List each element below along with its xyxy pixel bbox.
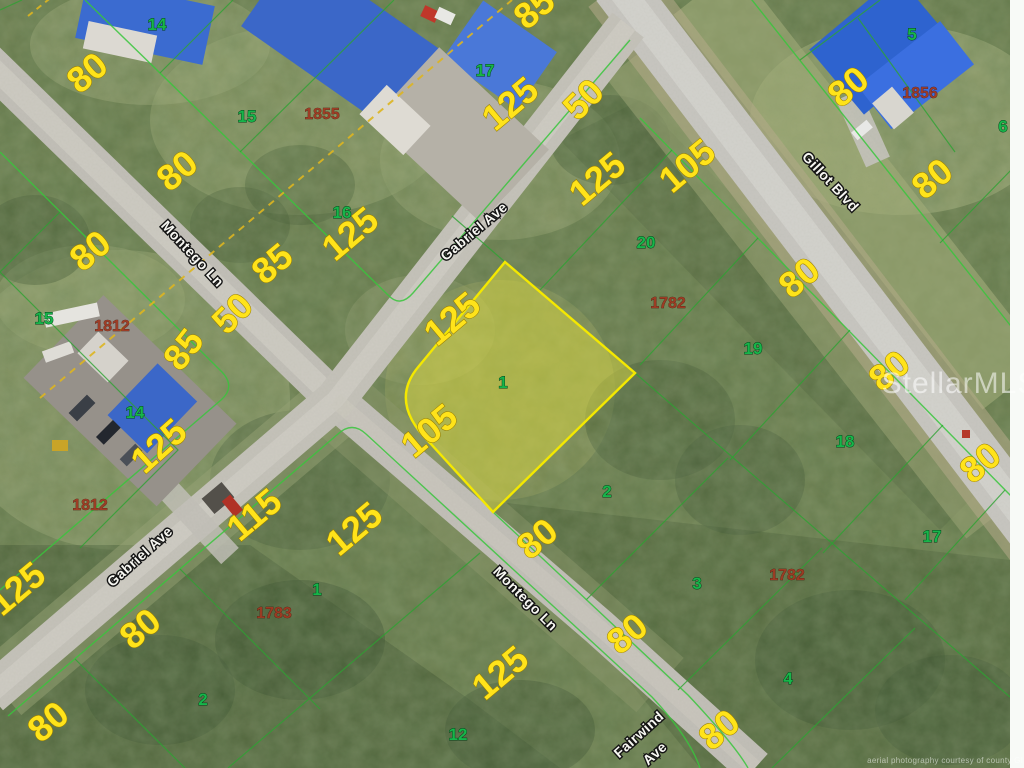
parcel-id-1782: 1782 <box>650 295 686 312</box>
lot-number-2: 2 <box>602 482 611 501</box>
lot-number-17: 17 <box>476 61 495 80</box>
parcel-id-1782: 1782 <box>769 567 805 584</box>
lot-number-15: 15 <box>35 309 54 328</box>
lot-number-1: 1 <box>312 580 321 599</box>
parcel-id-1812: 1812 <box>94 318 130 335</box>
parcel-id-1856: 1856 <box>902 85 938 102</box>
lot-number-16: 16 <box>333 203 352 222</box>
lot-number-4: 4 <box>783 669 793 688</box>
copyright-note: aerial photography courtesy of county GI… <box>867 756 1024 765</box>
parcel-id-1812: 1812 <box>72 497 108 514</box>
stellar-mls-watermark: StellarMLS <box>882 367 1024 400</box>
lot-number-19: 19 <box>744 339 763 358</box>
lot-number-12: 12 <box>449 725 468 744</box>
lot-number-14: 14 <box>148 15 167 34</box>
lot-number-20: 20 <box>637 233 656 252</box>
lot-number-17: 17 <box>923 527 942 546</box>
lot-number-15: 15 <box>238 107 257 126</box>
lot-number-3: 3 <box>692 574 701 593</box>
lot-number-1: 1 <box>498 373 507 392</box>
parcel-id-1783: 1783 <box>256 605 292 622</box>
lot-number-18: 18 <box>836 432 855 451</box>
aerial-parcel-map: Montego LnGabriel AveGillot BlvdGabriel … <box>0 0 1024 768</box>
lot-number-6: 6 <box>998 117 1007 136</box>
parcel-id-1855: 1855 <box>304 106 340 123</box>
lot-number-5: 5 <box>907 25 916 44</box>
lot-number-14: 14 <box>126 403 145 422</box>
lot-number-2: 2 <box>198 690 207 709</box>
yellow-equipment <box>52 440 68 451</box>
